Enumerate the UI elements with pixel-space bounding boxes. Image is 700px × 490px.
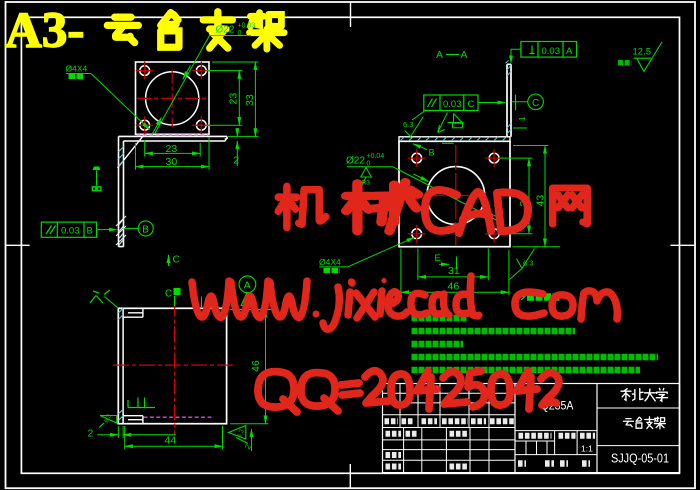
svg-text:C: C <box>173 255 180 266</box>
svg-text:B: B <box>87 226 93 237</box>
svg-text:A: A <box>566 46 573 57</box>
svg-text:46: 46 <box>250 360 262 372</box>
svg-text:C: C <box>532 98 539 109</box>
svg-text:6.3: 6.3 <box>403 120 413 129</box>
svg-text:+0.04: +0.04 <box>367 153 385 160</box>
svg-text:R3: R3 <box>362 180 371 187</box>
svg-text:0.03: 0.03 <box>61 226 80 237</box>
svg-text:30: 30 <box>166 156 178 168</box>
svg-text:SJJQ-05-01: SJJQ-05-01 <box>611 452 669 466</box>
svg-text:33: 33 <box>244 94 256 106</box>
svg-text:1:1: 1:1 <box>581 444 593 454</box>
svg-text:E: E <box>435 253 441 264</box>
svg-text:23: 23 <box>166 143 178 155</box>
svg-text:A: A <box>461 49 468 61</box>
svg-text:Ø4X4: Ø4X4 <box>66 64 88 74</box>
svg-text:31: 31 <box>448 265 460 277</box>
svg-text:B: B <box>142 224 149 235</box>
svg-text:2: 2 <box>233 155 239 167</box>
svg-text:A: A <box>244 280 251 292</box>
svg-text:A3-: A3- <box>5 3 84 59</box>
svg-text:1: 1 <box>518 116 527 121</box>
svg-text:Ø22: Ø22 <box>216 25 235 36</box>
svg-text:46: 46 <box>448 280 460 292</box>
svg-text:C: C <box>468 99 475 110</box>
svg-text:C: C <box>165 289 172 300</box>
svg-text:12.5: 12.5 <box>633 47 652 58</box>
svg-text:44: 44 <box>165 435 177 447</box>
svg-text:6.3: 6.3 <box>523 259 533 268</box>
svg-text:0.03: 0.03 <box>542 46 561 57</box>
svg-text:0.03: 0.03 <box>443 99 462 110</box>
svg-text:+0.03: +0.03 <box>238 23 256 30</box>
svg-text:Ø4X4: Ø4X4 <box>319 257 341 267</box>
svg-text:43: 43 <box>534 195 546 207</box>
svg-text:23: 23 <box>228 93 240 105</box>
svg-text:A: A <box>436 49 443 61</box>
svg-text:2: 2 <box>88 428 94 440</box>
svg-text:Ø22: Ø22 <box>346 156 365 167</box>
svg-text:B: B <box>429 148 435 158</box>
